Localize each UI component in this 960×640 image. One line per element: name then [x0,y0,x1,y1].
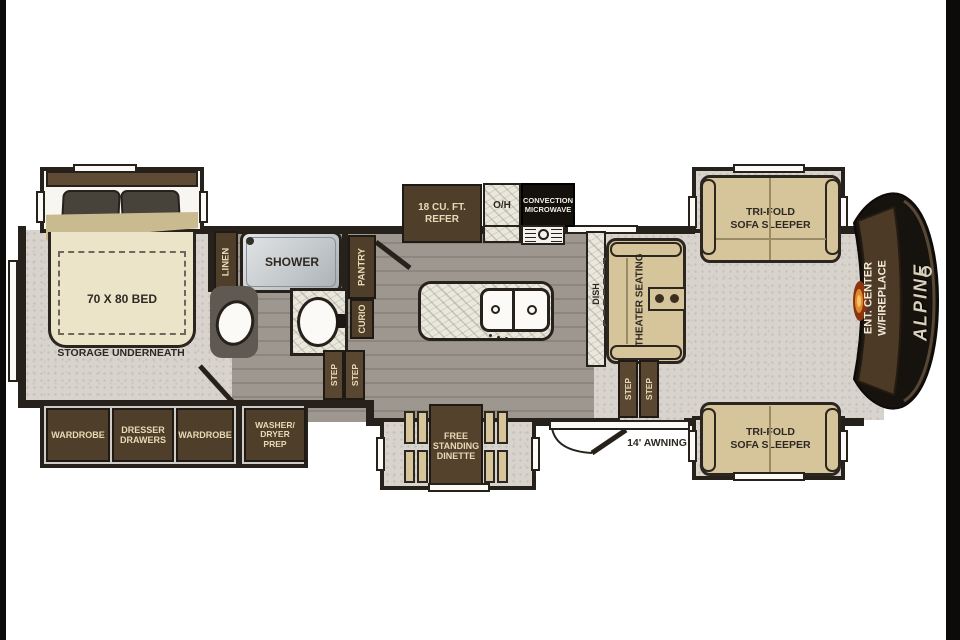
dinette-chair-l1a [404,411,415,444]
vanity-faucet-icon [336,314,346,328]
dresser-drawers: DRESSER DRAWERS [112,408,174,462]
dresser-label-line2: DRAWERS [120,435,166,445]
wardrobe-1-label: WARDROBE [51,430,105,440]
front-left-wall [18,226,26,408]
cooktop-burner-icon [538,229,549,240]
sofa-bottom-window-rear [733,472,805,481]
dinette-chair-r2b [497,450,508,483]
kitchen-counter [483,225,521,243]
sink-dot-2 [497,336,500,339]
left-pillar-bar [0,0,6,640]
dinette-label-line1: FREE [444,431,468,441]
sink-dot-3 [505,337,508,340]
sink-drain-left [491,305,500,314]
island-sink-divider [512,289,515,331]
dinette-window-left [376,437,385,471]
dinette-window-right [531,437,540,471]
vanity-sink [297,297,339,347]
refer-label-line1: 18 CU. FT. [418,202,466,213]
dinette-chair-r2a [497,411,508,444]
sofa-bottom-center-seam [769,406,771,474]
pantry-label: PANTRY [357,248,368,286]
sofa-bottom-window-left [688,430,697,462]
awning-label: 14' AWNING [627,437,687,449]
theater-arm-bottom [610,345,682,360]
cooktop-grill-left [525,229,536,242]
dinette-chair-l2b [417,450,428,483]
dresser-label-line1: DRESSER [121,425,165,435]
dish-label: DISH [591,283,601,305]
dinette-table: FREE STANDING DINETTE [429,404,483,488]
wd-prep-label-line3: PREP [263,440,286,450]
overhead-label: O/H [493,200,511,211]
sink-dot-1 [489,334,492,337]
sink-drain-right [527,305,537,315]
entry-door-swing [544,424,636,466]
bath-step-1-label: STEP [329,364,339,386]
storage-underneath-label: STORAGE UNDERNEATH [57,347,184,359]
refrigerator: 18 CU. FT. REFER [402,184,482,243]
bath-step-2-label: STEP [350,364,360,386]
wardrobe-cabinet-2: WARDROBE [176,408,234,462]
rear-cap [838,165,950,437]
microwave-label-line1: CONVECTION [523,196,573,205]
convection-microwave: CONVECTION MICROWAVE [521,183,575,227]
bedroom-side-window [8,260,18,382]
washer-dryer-prep-cabinet: WASHER/ DRYER PREP [244,408,306,462]
theater-seating-label: THEATER SEATING [635,254,646,347]
bed-size-label: 70 X 80 BED [87,292,157,306]
wardrobe-cabinet-1: WARDROBE [46,408,110,462]
theater-cupholder-console [648,287,686,311]
bed-slide-window-left [36,191,45,223]
ent-center-label-line2: W/FIREPLACE [876,208,890,388]
entry-step-2-label: STEP [644,378,654,400]
wardrobe-2-label: WARDROBE [178,430,232,440]
sofa-top-seat-seam [716,238,826,240]
shower-head-icon [246,237,254,245]
entry-step-1-label: STEP [623,378,633,400]
linen-label: LINEN [221,248,232,277]
sofa-top-arm-left [701,179,716,255]
theater-back-seam [626,258,628,344]
curio-label: CURIO [357,305,367,334]
ent-center-label: ENT. CENTER W/FIREPLACE [862,208,890,388]
bed-slide-window-top [73,164,137,173]
rv-floorplan: 70 X 80 BED STORAGE UNDERNEATH LINEN SHO… [0,0,960,640]
sofa-top-window-left [688,196,697,228]
dinette-chair-l2a [417,411,428,444]
dinette-chair-r1a [484,411,495,444]
theater-arm-top [610,242,682,257]
dinette-chair-l1b [404,450,415,483]
dinette-window-rear [428,483,490,492]
sofa-top-center-seam [769,178,771,260]
shower-label: SHOWER [265,255,319,269]
bed-slide-window-right [199,191,208,223]
cupholder-left [655,294,664,303]
fireplace-glow-core [857,295,861,307]
microwave-label-line2: MICROWAVE [525,205,572,214]
dinette-chair-r1b [484,450,495,483]
overhead-cabinet: O/H [483,183,521,227]
cupholder-right [670,294,679,303]
dinette-label-line3: DINETTE [437,451,476,461]
ent-center-label-line1: ENT. CENTER [862,208,876,388]
dinette-label-line2: STANDING [433,441,479,451]
sofa-bottom-arm-left [701,408,716,472]
refer-label-line2: REFER [425,214,459,225]
headboard [46,171,198,187]
slide-divider [236,406,242,464]
sofa-top-window-rear [733,164,805,173]
cooktop-grill-right [551,229,562,242]
